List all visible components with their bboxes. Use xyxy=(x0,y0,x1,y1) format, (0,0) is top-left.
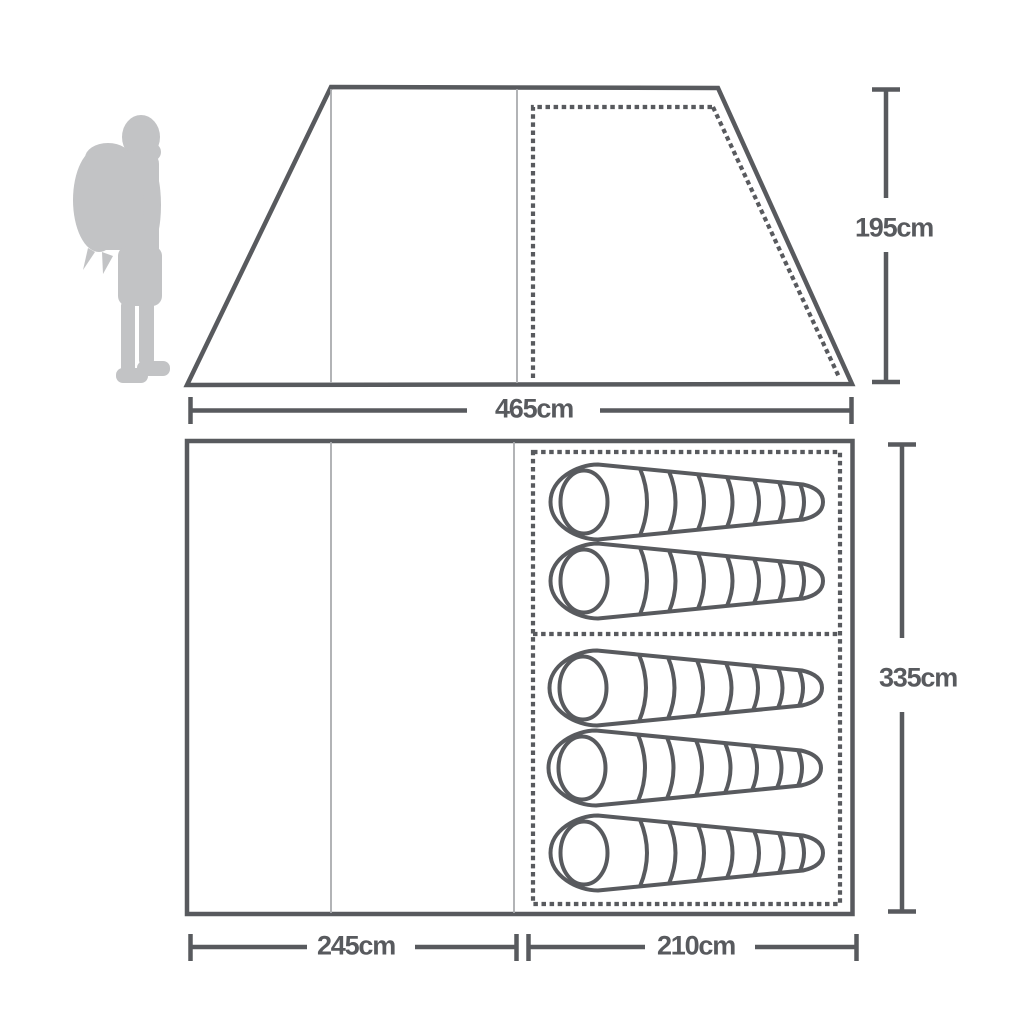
right-width-dimension-label: 210cm xyxy=(657,933,735,960)
base-width-dimension-label: 465cm xyxy=(495,396,573,423)
tent-side-elevation xyxy=(187,87,852,385)
elevation-bedroom-dashed-outline xyxy=(533,107,839,378)
sleeping-bag-icon xyxy=(551,816,824,891)
sleeping-bags xyxy=(549,465,824,891)
height-dimension-label: 195cm xyxy=(855,215,933,242)
sleeping-bag-icon xyxy=(551,544,824,619)
sleeping-bag-icon xyxy=(550,651,823,726)
tent-dimensions-diagram: 195cm 465cm 335cm 245cm 210cm xyxy=(0,0,1024,1024)
tent-floor-plan xyxy=(187,441,853,914)
diagram-line-art xyxy=(0,0,1024,1024)
floor-depth-dimension-label: 335cm xyxy=(879,665,957,692)
hiker-with-backpack-icon xyxy=(73,115,170,383)
sleeping-bag-icon xyxy=(549,731,822,806)
left-width-dimension-label: 245cm xyxy=(317,933,395,960)
sleeping-bag-icon xyxy=(551,465,824,540)
